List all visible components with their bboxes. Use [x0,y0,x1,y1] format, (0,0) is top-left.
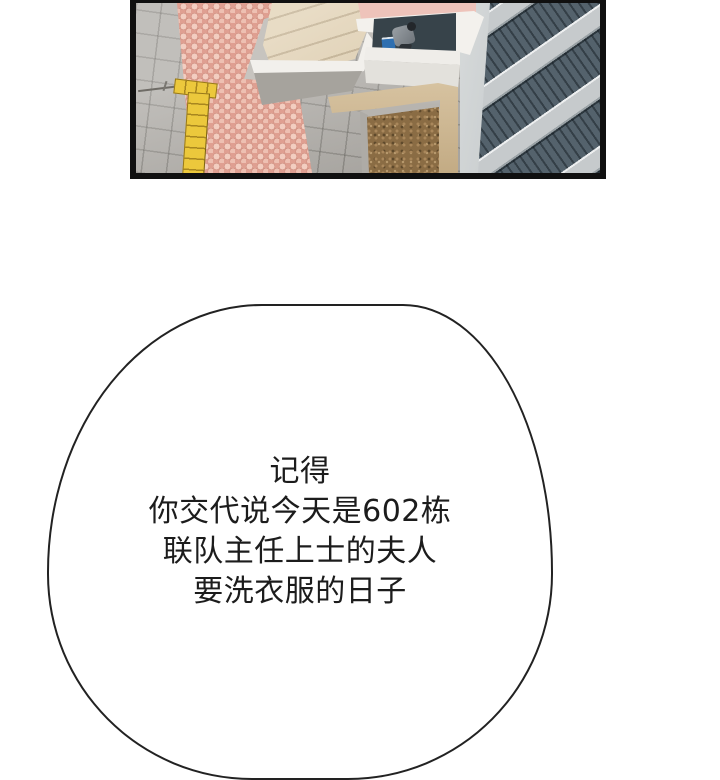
speech-text-line: 记得 [149,452,452,492]
comic-page: { "page": { "background": "#ffffff", "ty… [0,0,720,700]
speech-text-line: 要洗衣服的日子 [149,572,452,612]
story-panel [130,0,606,179]
speech-bubble: 记得 你交代说今天是602栋 联队主任上士的夫人 要洗衣服的日子 [47,304,553,780]
speech-text-line: 你交代说今天是602栋 [149,492,452,532]
courtyard-scene [136,3,600,173]
speech-text-line: 联队主任上士的夫人 [149,532,452,572]
building-facade [472,3,600,173]
person-head [407,22,416,31]
speech-text: 记得 你交代说今天是602栋 联队主任上士的夫人 要洗衣服的日子 [149,452,452,612]
